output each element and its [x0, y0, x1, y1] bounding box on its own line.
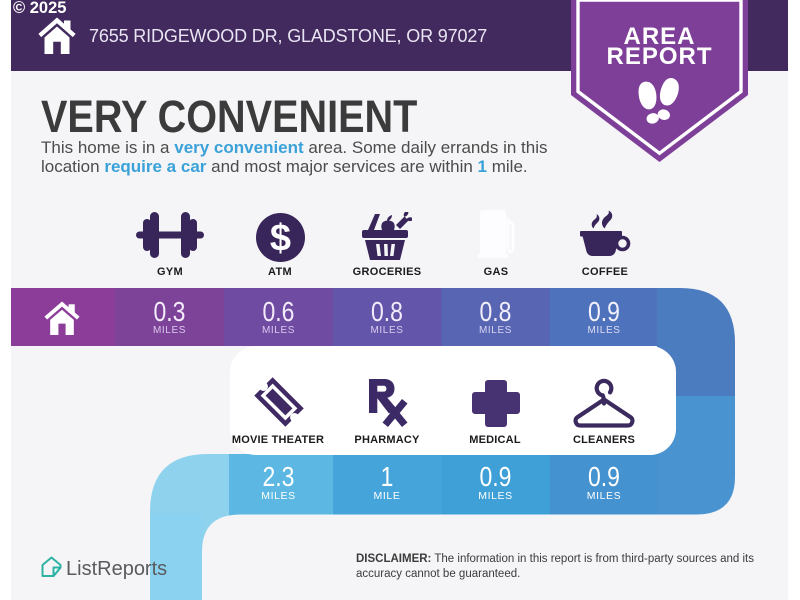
svg-text:$: $	[270, 218, 291, 260]
svg-text:REPORT: REPORT	[606, 43, 712, 70]
